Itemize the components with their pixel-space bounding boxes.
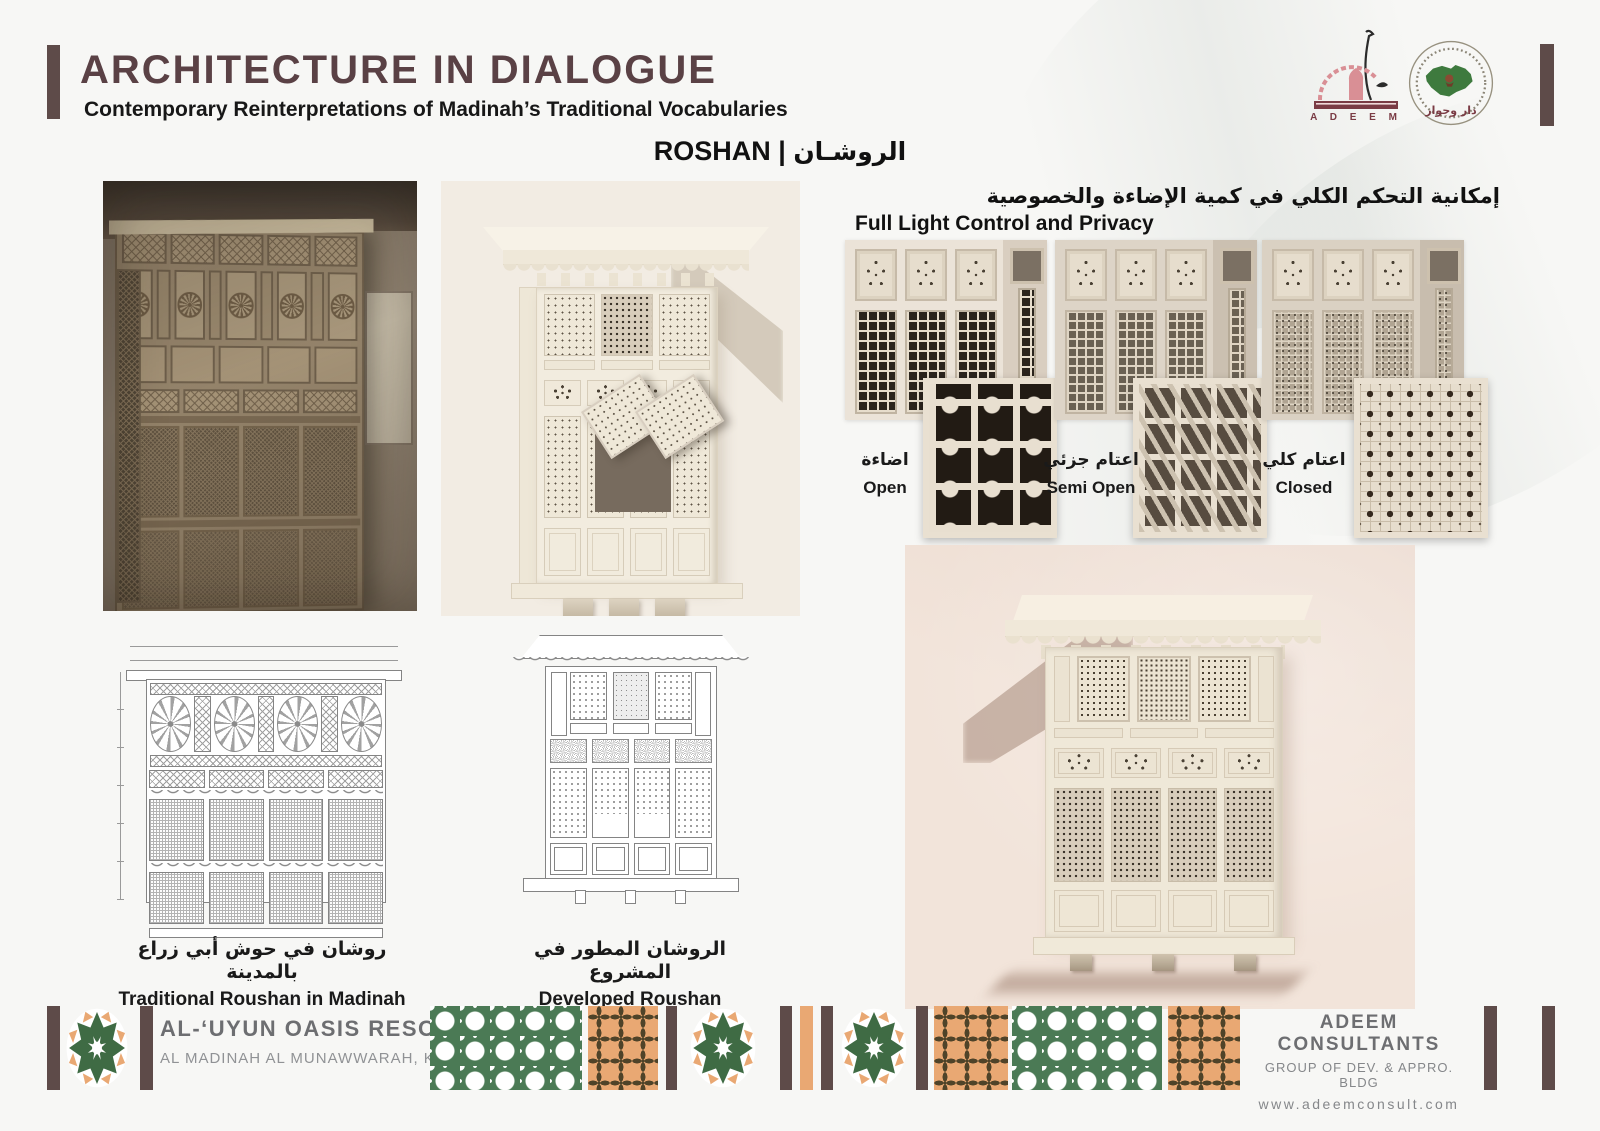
rail-row: [1054, 728, 1274, 738]
rosette-pattern-icon: [841, 1008, 907, 1088]
rail-row: [544, 360, 710, 370]
rosette-row: [150, 696, 382, 752]
base-bracket: [1234, 954, 1256, 971]
rosette-pattern-icon: [66, 1008, 128, 1088]
drawing-foot: [675, 890, 686, 904]
project-name: AL-‘UYUN OASIS RESORT: [160, 1016, 469, 1042]
dimension-ticks: [117, 672, 124, 900]
state-label-open: اضاءة Open: [837, 450, 933, 499]
section-title-separator: |: [778, 136, 786, 166]
mesh-row-1: [149, 799, 383, 861]
inset-semi-open-detail: [1133, 378, 1267, 538]
photo-background-window: [365, 291, 413, 445]
header-accent-bar-left: [47, 45, 60, 119]
canopy-fascia: [503, 250, 749, 264]
footer-bar: [916, 1006, 928, 1090]
side-frame: [551, 672, 567, 736]
photo-roshan-rail: [119, 518, 360, 528]
developed-roushan-drawing: [505, 633, 755, 908]
plinth: [149, 928, 383, 938]
photo-roshan-rosette-row: [117, 266, 362, 344]
canopy-fascia: [1005, 620, 1321, 636]
green-lattice-pattern: [1012, 1006, 1162, 1090]
state-closed-arabic: اعتام كلي: [1256, 450, 1352, 471]
photo-roshan-top-row: [117, 229, 362, 270]
developed-caption: الروشان المطور في المشروع Developed Rous…: [505, 938, 755, 1011]
page-subtitle: Contemporary Reinterpretations of Madina…: [84, 98, 788, 122]
canopy-top: [1013, 595, 1313, 621]
variant-square-row: [1065, 249, 1207, 301]
canopy-scallop: [511, 657, 749, 664]
photo-roshan-band-row: [117, 386, 362, 416]
orange-floral-pattern: [934, 1006, 1008, 1090]
footer-bar-orange: [800, 1006, 813, 1090]
dimension-line: [130, 646, 398, 647]
roshan-body: [536, 287, 718, 585]
footer-bar: [1484, 1006, 1497, 1090]
variant-square-row: [855, 249, 997, 301]
developed-caption-arabic: الروشان المطور في المشروع: [505, 938, 755, 984]
traditional-caption-arabic: روشان في حوش أبي زراع بالمدينة: [112, 938, 412, 984]
company-identity: ADEEM CONSULTANTS GROUP OF DEV. & APPRO.…: [1248, 1012, 1470, 1112]
photo-roshan-structure: [115, 227, 364, 611]
mesh-row-2: [149, 872, 383, 924]
state-open-arabic: اضاءة: [837, 450, 933, 471]
small-panel-row: [1054, 748, 1274, 778]
inset-open-detail: [923, 378, 1057, 538]
presentation-board: ARCHITECTURE IN DIALOGUE Contemporary Re…: [0, 0, 1600, 1131]
side-window: [1427, 248, 1461, 284]
traditional-caption-english: Traditional Roushan in Madinah: [112, 989, 412, 1012]
company-website[interactable]: www.adeemconsult.com: [1248, 1096, 1470, 1112]
drawing-foot: [575, 890, 586, 904]
photo-ceiling: [103, 181, 417, 239]
project-identity: AL-‘UYUN OASIS RESORT AL MADINAH AL MUNA…: [160, 1016, 469, 1067]
green-lattice-pattern: [430, 1006, 582, 1090]
variant-open: اضاءة Open: [845, 240, 1047, 540]
developed-roushan-wall-render: [905, 545, 1415, 1009]
footer-bar: [666, 1006, 677, 1090]
footer-bar: [47, 1006, 60, 1090]
ornate-square-row: [1054, 656, 1274, 722]
photo-roshan-panel-row: [117, 342, 362, 387]
state-open-english: Open: [837, 477, 933, 498]
base-bracket: [655, 599, 685, 616]
side-window: [1010, 248, 1044, 284]
traditional-caption: روشان في حوش أبي زراع بالمدينة Tradition…: [112, 938, 412, 1011]
drawing-foot: [625, 890, 636, 904]
roshan-base: [511, 583, 743, 599]
canopy-scallop-fringe: [503, 264, 749, 273]
traditional-roushan-drawing: [112, 640, 412, 908]
variant-semi-open: اعتام جزئي Semi Open: [1055, 240, 1257, 540]
lattice-panel-row: [1054, 788, 1274, 882]
canopy-brackets: [537, 273, 715, 286]
scallop-line: [149, 790, 383, 797]
light-control-title-arabic: إمكانية التحكم الكلي في كمية الإضاءة وال…: [855, 184, 1500, 208]
variant-closed: اعتام كلي Closed: [1262, 240, 1464, 540]
state-label-semi-open: اعتام جزئي Semi Open: [1043, 450, 1139, 499]
orange-floral-pattern: [588, 1006, 658, 1090]
state-closed-english: Closed: [1256, 477, 1352, 498]
state-semi-arabic: اعتام جزئي: [1043, 450, 1139, 471]
lattice-square-row: [544, 294, 710, 356]
company-group: GROUP OF DEV. & APPRO. BLDG: [1248, 1060, 1470, 1090]
lattice-strip: [150, 683, 382, 695]
photo-roshan-cornice: [109, 219, 374, 235]
photo-roshan-side-lattice: [117, 269, 141, 603]
photo-roshan-mesh-row-1: [117, 423, 362, 521]
adeem-logo-text: A D E E M: [1306, 112, 1406, 123]
footer-bar: [780, 1006, 792, 1090]
page-title: ARCHITECTURE IN DIALOGUE: [80, 48, 717, 93]
side-frame: [695, 672, 711, 736]
section-title: ROSHAN | الروشـان: [560, 136, 1000, 167]
base-bracket: [609, 599, 639, 616]
plain-panel-row: [544, 528, 710, 576]
company-name: ADEEM CONSULTANTS: [1248, 1012, 1470, 1056]
small-star-row: [550, 739, 712, 763]
section-title-ar: الروشـان: [793, 137, 906, 166]
footer-bar: [821, 1006, 833, 1090]
variant-square-row: [1272, 249, 1414, 301]
photo-wall: [355, 231, 417, 611]
dimension-line: [130, 660, 398, 661]
ground-shadow: [989, 973, 1305, 993]
lattice-band: [147, 770, 385, 788]
state-semi-english: Semi Open: [1043, 477, 1139, 498]
drawing-body: [545, 666, 717, 880]
orange-floral-pattern: [1168, 1006, 1240, 1090]
roshan-body: [1045, 647, 1283, 939]
dar-wa-jiwar-logo-text: دار وجوار: [1406, 104, 1496, 117]
ornate-square-row: [570, 672, 692, 720]
header-accent-bar-right: [1540, 44, 1554, 126]
section-title-en: ROSHAN: [654, 136, 771, 166]
drawing-canopy: [511, 635, 751, 659]
footer-bar: [1542, 1006, 1555, 1090]
photo-roshan-mesh-row-2: [117, 526, 362, 611]
base-bracket: [563, 599, 593, 616]
scallop-line: [149, 863, 383, 870]
base-bracket: [1070, 954, 1092, 971]
footer-bar: [140, 1006, 153, 1090]
lattice-row: [550, 768, 712, 838]
lattice-strip: [150, 755, 382, 767]
project-location: AL MADINAH AL MUNAWWARAH, KSA: [160, 1050, 469, 1067]
plain-panel-row: [1054, 890, 1274, 932]
developed-roshan-render: [441, 181, 800, 616]
inset-closed-detail: [1354, 378, 1488, 538]
roshan-base: [1033, 937, 1295, 955]
rosette-pattern-icon: [690, 1008, 756, 1088]
state-label-closed: اعتام كلي Closed: [1256, 450, 1352, 499]
base-bracket: [1152, 954, 1174, 971]
rail-row: [570, 723, 692, 734]
photo-roshan-rail: [119, 416, 360, 423]
traditional-roshan-photo: [103, 181, 417, 611]
side-window: [1220, 248, 1254, 284]
light-control-title-english: Full Light Control and Privacy: [855, 212, 1154, 236]
adeem-logo-icon: [1306, 28, 1406, 114]
canopy-top: [483, 227, 769, 251]
drawing-body: [146, 679, 386, 903]
plain-panel-row: [550, 843, 712, 875]
